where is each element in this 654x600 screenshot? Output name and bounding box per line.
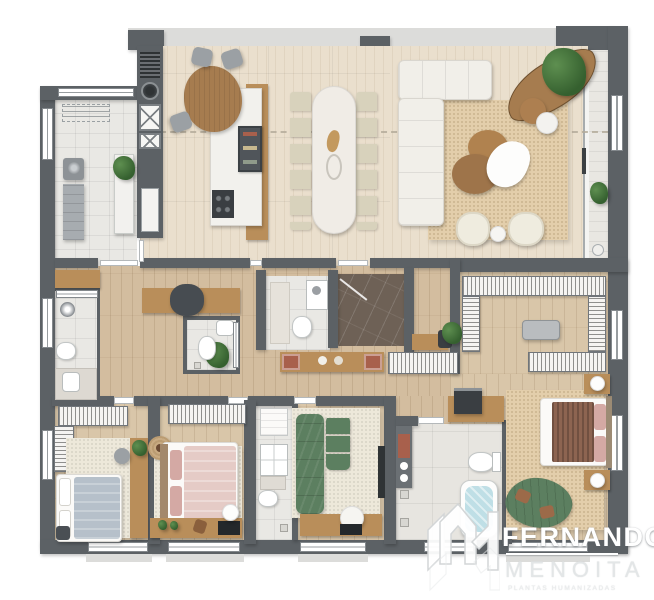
closet-wardrobe-left [462, 296, 480, 352]
console-decor-terracotta-1 [282, 354, 300, 370]
console-vase-1 [318, 356, 327, 365]
brand-underline [506, 553, 618, 555]
powder-sink-icon [216, 320, 234, 336]
tv-console-tv-icon [340, 524, 362, 535]
elevator-2-icon [139, 133, 161, 149]
cooktop-icon [212, 190, 234, 218]
window-service [42, 108, 53, 160]
hallbath-toilet-icon [292, 316, 312, 338]
balcony-door-handle [582, 148, 586, 174]
master-headboard [606, 396, 612, 468]
closet-wardrobe-right [588, 296, 606, 352]
guest-toilet-icon [56, 342, 76, 360]
shelf-decor-1 [243, 132, 257, 136]
bedroom2-pillow-1 [170, 450, 182, 480]
wall-social-hall-1 [55, 258, 98, 268]
shelf-decor-2 [243, 146, 257, 150]
shower-head-icon [60, 302, 75, 317]
window-service-top [58, 88, 134, 97]
closet-wardrobe-top [462, 276, 606, 296]
hallbath-shower [306, 280, 328, 310]
door-hall-entry [100, 260, 138, 266]
bedroom1-stool [56, 526, 70, 540]
window-bedroom-1 [88, 542, 148, 552]
window-guest-bath [42, 298, 53, 348]
wall-mounted-tv-icon [378, 446, 385, 498]
green-sectional [296, 414, 324, 514]
master-vanity-tray [398, 434, 410, 458]
guest-bath-overhead-cabinet [55, 270, 100, 288]
door-tv-room [294, 397, 316, 404]
bedroom1-desk-plant-icon [132, 440, 147, 456]
breakfast-table [184, 66, 242, 132]
office-chair [170, 284, 204, 316]
service-plant-icon [113, 156, 135, 180]
console-vase-2 [334, 356, 343, 365]
washer-door-icon [68, 162, 80, 174]
bedroom2-wardrobe-top [168, 404, 246, 424]
coffee-machine-icon [454, 388, 482, 414]
brand-watermark: FERNANDO MENOITA PLANTAS HUMANIZADAS [420, 498, 654, 598]
louver-vent-icon [140, 52, 160, 78]
l-sofa-left-arm [398, 98, 444, 226]
master-sink-1 [400, 462, 408, 470]
wall-tv-masterbath [384, 396, 396, 544]
bedroom1-desk-stool [114, 448, 130, 464]
master-drain-1 [400, 490, 409, 499]
door-service-kitchen [139, 240, 144, 262]
nightstand-lamp-bottom [590, 473, 605, 488]
brand-name-line2: MENOITA [505, 557, 646, 583]
master-drain-2 [400, 518, 409, 527]
wall-bedrooms-top-4 [316, 396, 388, 406]
hall-shelf-plant-icon [442, 322, 462, 344]
window-closet [611, 310, 623, 360]
brand-monogram-icon [424, 500, 500, 592]
master-duvet [552, 402, 594, 462]
green-ottomans [326, 416, 350, 470]
floor-plan-canvas: FERNANDO MENOITA PLANTAS HUMANIZADAS [0, 0, 654, 600]
closet-island-bench [522, 320, 560, 340]
powder-toilet-icon [198, 336, 216, 360]
servicebath-drain-icon [280, 524, 288, 532]
master-pillow-2 [594, 436, 606, 462]
window-bedroom-1-side [42, 430, 53, 480]
sill-slab-2 [166, 554, 244, 562]
brand-name-line1: FERNANDO [502, 522, 654, 553]
door-social-2 [250, 260, 262, 266]
breakfast-chair-1 [190, 46, 213, 68]
balcony-floor [588, 50, 610, 262]
servicebath-cabinet [260, 408, 288, 436]
balcony-pot-icon [592, 244, 604, 256]
terrace-slab-top [128, 28, 572, 46]
bedroom1-wardrobe-top [58, 406, 128, 426]
window-balcony [611, 95, 623, 151]
master-toilet-tank [492, 452, 501, 472]
bedroom2-plant-1 [158, 520, 167, 530]
wall-closet-top [456, 258, 628, 272]
wall-social-hall-2 [140, 258, 250, 268]
servicebath-toilet-icon [258, 490, 278, 507]
sill-slab-3 [298, 554, 368, 562]
core-cabinet [141, 188, 159, 232]
drying-rack [62, 104, 110, 122]
gauge-icon [141, 82, 159, 100]
nightstand-lamp-top [590, 376, 605, 391]
brand-tagline: PLANTAS HUMANIZADAS [508, 585, 617, 592]
powder-drain-icon [194, 362, 201, 369]
window-bedroom-2 [168, 542, 240, 552]
bedroom2-headboard [160, 444, 168, 524]
bedroom1-pillow-1 [59, 478, 71, 506]
powder-towel-rail [233, 322, 239, 368]
door-bedroom-1 [114, 397, 134, 404]
bedroom2-plant-2 [170, 521, 178, 530]
wall-social-hall-4 [370, 258, 458, 268]
guest-sink-icon [62, 372, 80, 392]
living-plant-icon [542, 48, 586, 96]
hall-wardrobe [388, 352, 458, 374]
side-table-white [536, 112, 558, 134]
window-master-bedroom [611, 415, 623, 471]
master-pillow-1 [594, 404, 606, 430]
wall-bath3-marble [328, 270, 338, 348]
armchair-1 [456, 212, 490, 246]
master-sink-2 [400, 474, 408, 482]
master-toilet-icon [468, 452, 494, 472]
bedroom2-tv-icon [218, 521, 240, 535]
hallbath-counter [270, 282, 290, 344]
hallbath-shower-head [312, 286, 321, 295]
console-decor-terracotta-2 [364, 354, 382, 370]
l-sofa-top-arm [398, 60, 492, 100]
servicebath-counter [260, 476, 286, 490]
tall-appliance [63, 184, 84, 240]
wall-social-hall-3 [262, 258, 336, 268]
dining-chairs-left [290, 92, 311, 230]
sill-slab-1 [86, 554, 152, 562]
wall-masterbath-top [396, 416, 418, 426]
door-master-bath [418, 417, 444, 424]
dining-chairs-right [356, 92, 377, 230]
servicebath-washer-icon [260, 444, 288, 476]
centerpiece-ring [326, 154, 342, 180]
armchair-2 [508, 212, 544, 246]
door-elevator-hall [338, 260, 368, 266]
bedroom1-duvet [74, 477, 120, 539]
armchair-side-table [490, 226, 506, 242]
wall-bath3-left [256, 270, 266, 350]
balcony-plant-icon [590, 182, 608, 204]
window-tv-room [300, 542, 366, 552]
guest-bath-shelf-strip [56, 290, 98, 298]
closet-wardrobe-bottom [528, 352, 606, 372]
elevator-1-icon [139, 104, 161, 131]
bedroom2-pillow-2 [170, 486, 182, 516]
bedroom2-dome-lamp [222, 504, 239, 521]
shelf-decor-3 [243, 160, 257, 164]
